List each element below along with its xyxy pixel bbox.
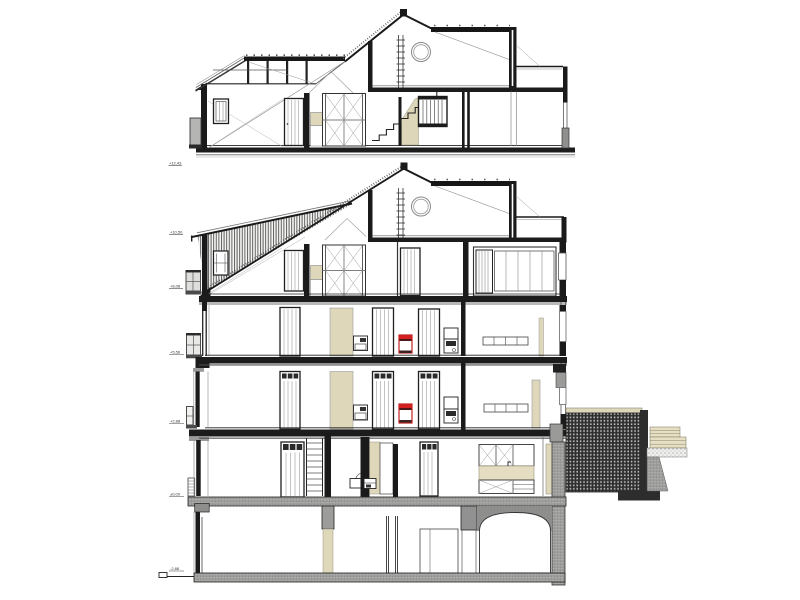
svg-text:+5,56: +5,56 xyxy=(170,350,181,355)
svg-text:+2,88: +2,88 xyxy=(170,419,181,424)
svg-text:+10,50: +10,50 xyxy=(170,230,183,235)
svg-text:+8,08: +8,08 xyxy=(170,284,181,289)
svg-text:±0,00: ±0,00 xyxy=(170,492,181,497)
svg-text:-2,88: -2,88 xyxy=(170,566,180,571)
svg-text:+12,43: +12,43 xyxy=(169,161,182,166)
